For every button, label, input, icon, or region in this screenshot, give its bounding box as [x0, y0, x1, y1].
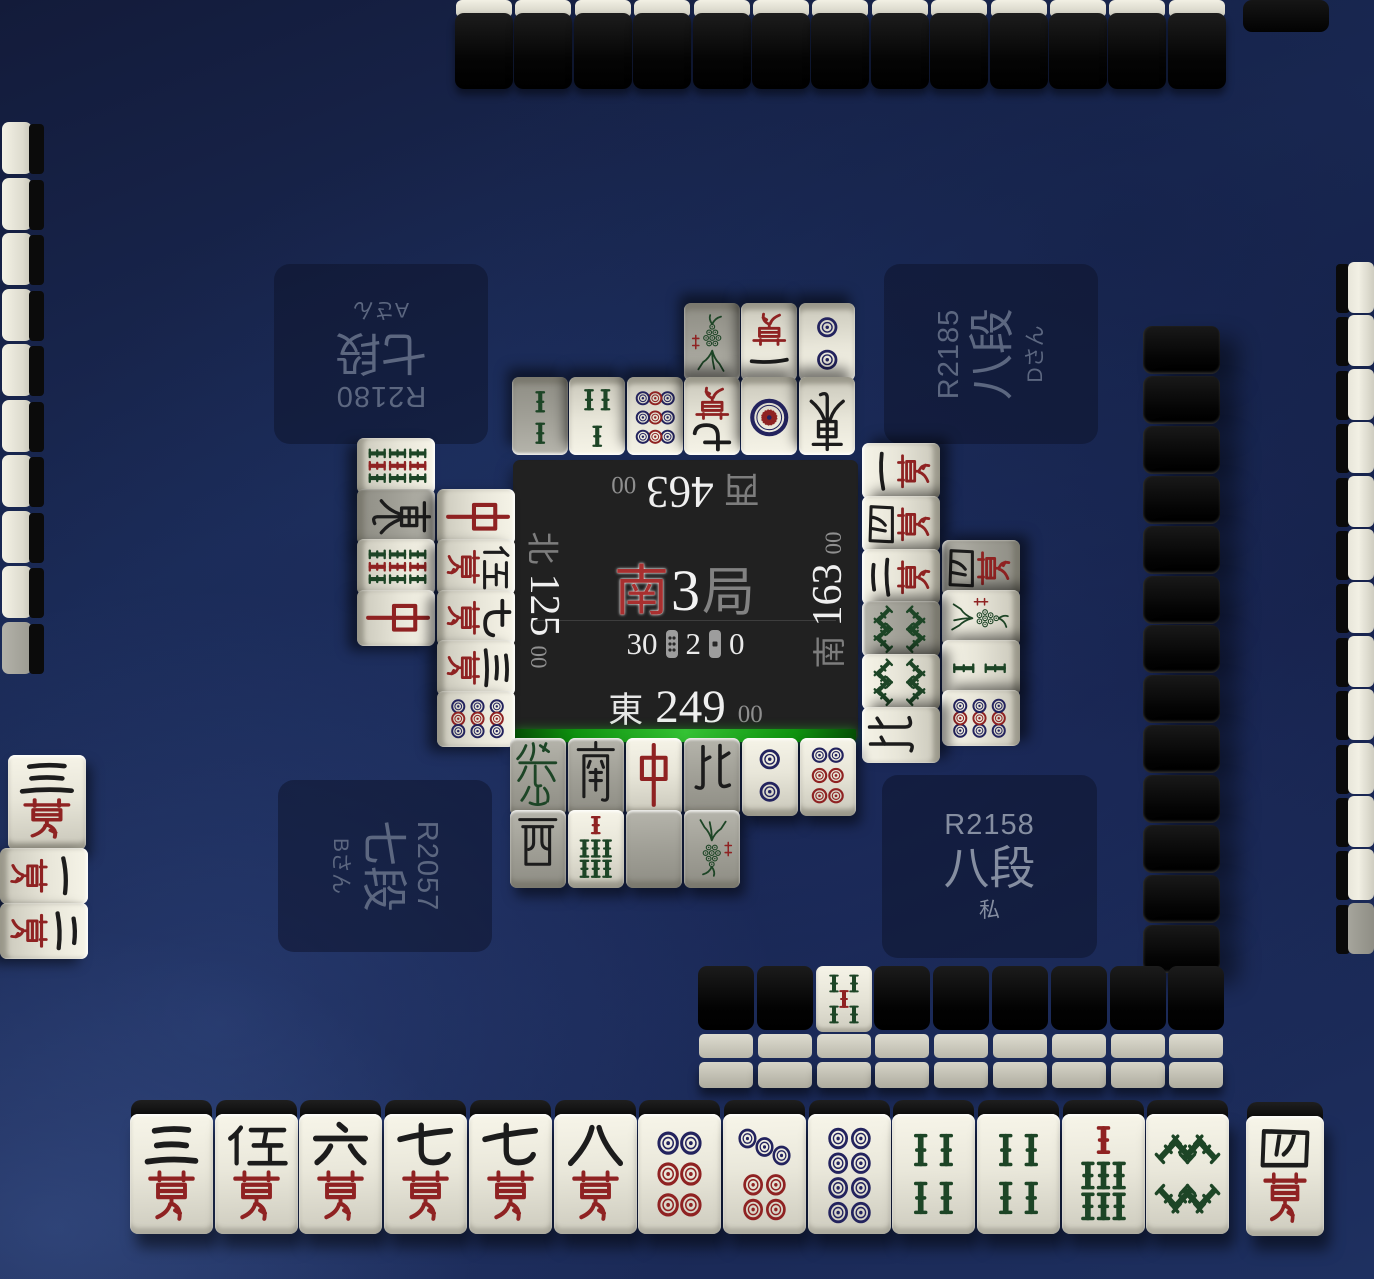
right-outer-wall-tile-side — [1336, 262, 1374, 314]
left-wall-tile-side — [2, 289, 46, 343]
drawn-tile-4m[interactable] — [1246, 1102, 1324, 1252]
right-wall-tile-back — [1143, 725, 1220, 773]
tile-9m-discard-left — [437, 590, 515, 646]
left-wall-tile-side — [2, 455, 46, 509]
tile-9p-discard-top — [627, 377, 683, 455]
hand-tile-5m[interactable] — [215, 1100, 298, 1250]
tile-N-discard-right — [862, 707, 940, 763]
tile-E-discard-left — [357, 489, 435, 545]
hand-tile-4s[interactable] — [892, 1100, 975, 1250]
tile-8s-discard-right — [862, 654, 940, 710]
bottom-wall-tile-back — [1168, 966, 1224, 1094]
top-wall-tile-back — [752, 0, 810, 90]
player-left-name: Bさん — [327, 780, 357, 952]
right-outer-wall-tile-side — [1336, 529, 1374, 581]
left-wall-tile-side — [2, 566, 46, 620]
tile-N-discard-bottom — [684, 738, 740, 816]
tile-9s-discard-left — [357, 539, 435, 595]
left-wall-tile-side — [2, 400, 46, 454]
hand-tile-7p[interactable] — [723, 1100, 806, 1250]
tile-W-discard-bottom — [510, 810, 566, 888]
top-wall-tile-back — [633, 0, 691, 90]
right-outer-wall-tile-side — [1336, 476, 1374, 528]
right-wall-tile-back — [1143, 526, 1220, 574]
tile-9s-discard-left — [357, 438, 435, 494]
player-bottom-name: 私 — [882, 894, 1097, 924]
score-top: 西 463 00 — [513, 466, 858, 518]
player-bottom-rank: 八段 — [882, 842, 1097, 895]
tile-9m-discard-top — [684, 377, 740, 455]
bottom-wall-tile-back — [933, 966, 989, 1094]
top-wall-tile-back — [811, 0, 869, 90]
tile-2p-discard-top — [799, 303, 855, 381]
player-panel-left: R2057 七段 Bさん — [278, 780, 492, 952]
round-indicator: 南3局 — [513, 546, 858, 626]
tile-4m-discard-right — [942, 540, 1020, 596]
sticks-row: 30 2 0 — [513, 626, 858, 662]
player-top-rank: 七段 — [274, 326, 488, 379]
bottom-wall-tile-back — [992, 966, 1048, 1094]
tile-C-discard-left — [357, 590, 435, 646]
right-wall-tile-back — [1143, 476, 1220, 524]
tile-9p-discard-right — [942, 690, 1020, 746]
tile-E-discard-top — [799, 377, 855, 455]
top-wall-tile-back — [574, 0, 632, 90]
tile-1m-discard-right — [862, 443, 940, 499]
tile-1s-discard-top — [684, 303, 740, 381]
bottom-wall-tile-back — [1051, 966, 1107, 1094]
tile-2p-discard-bottom — [742, 738, 798, 816]
player-right-rating: R2185 — [933, 264, 966, 444]
right-wall-tile-back — [1143, 576, 1220, 624]
left-wall-tile-side — [2, 233, 46, 287]
hand-tile-7m[interactable] — [469, 1100, 552, 1250]
round-number: 3 — [671, 558, 702, 623]
player-left-rating: R2057 — [410, 780, 443, 952]
tile-2m-discard-right — [862, 549, 940, 605]
left-wall-tile-side — [2, 178, 46, 232]
right-outer-wall-tile-side — [1336, 422, 1374, 474]
mahjong-table: R2180 七段 Aさん R2185 八段 Dさん R2057 七段 Bさん R… — [0, 0, 1374, 1279]
hand-tile-6p[interactable] — [638, 1100, 721, 1250]
top-wall-tile-back — [514, 0, 572, 90]
tile-3m-meld — [8, 755, 86, 850]
tile-F-discard-bottom — [510, 738, 566, 816]
right-wall-tile-back — [1143, 326, 1220, 374]
tile-3m-discard-left — [437, 640, 515, 696]
right-outer-wall-tile-side — [1336, 315, 1374, 367]
tile-C-discard-bottom — [626, 738, 682, 816]
hundred-point-stick-icon — [665, 629, 679, 659]
center-divider — [535, 620, 836, 621]
bottom-wall-tile-back — [698, 966, 754, 1094]
right-outer-wall-tile-side — [1336, 903, 1374, 955]
score-top-value: 463 — [646, 466, 714, 518]
top-wall-tile-back — [1168, 0, 1226, 90]
tile-C-discard-left — [437, 489, 515, 545]
right-outer-wall-tile-side — [1336, 582, 1374, 634]
left-wall-tile-side — [2, 122, 46, 176]
tile-1m-meld — [0, 848, 88, 904]
thousand-point-stick-icon — [708, 629, 722, 659]
tile-1m-discard-top — [741, 303, 797, 381]
left-wall-tile-side — [2, 622, 46, 676]
tile-2s-discard-right — [942, 640, 1020, 696]
top-wall-tile-back — [455, 0, 513, 90]
riichi-stick-count: 0 — [729, 626, 745, 662]
right-wall-tile-back — [1143, 675, 1220, 723]
player-right-name: Dさん — [1019, 264, 1049, 444]
left-wall-tile-side — [2, 344, 46, 398]
tile-1p-discard-top — [741, 377, 797, 455]
tiles-remaining-count: 30 — [627, 626, 658, 662]
right-outer-wall-tile-side — [1336, 796, 1374, 848]
right-outer-wall-tile-side — [1336, 689, 1374, 741]
score-bottom-cents: 00 — [738, 701, 763, 729]
tile-7s-discard-bottom — [568, 810, 624, 888]
top-wall-tile-back — [693, 0, 751, 90]
score-bottom-wind: 東 — [608, 682, 643, 733]
player-panel-top: R2180 七段 Aさん — [274, 264, 488, 444]
top-wall-tile-back — [1108, 0, 1166, 90]
hand-tile-8p[interactable] — [808, 1100, 891, 1250]
hand-tile-7m[interactable] — [384, 1100, 467, 1250]
right-wall-tile-back — [1143, 825, 1220, 873]
wall-fragment — [1243, 0, 1329, 32]
hand-tile-4s[interactable] — [977, 1100, 1060, 1250]
hand-tile-3m[interactable] — [130, 1100, 213, 1250]
tile-8s-discard-right — [862, 601, 940, 657]
top-wall-tile-back — [990, 0, 1048, 90]
tile-2m-meld — [0, 903, 88, 959]
score-top-wind: 西 — [724, 466, 760, 518]
tile-9p-discard-left — [437, 691, 515, 747]
tile-S-discard-bottom — [568, 738, 624, 816]
right-wall-tile-back — [1143, 775, 1220, 823]
score-top-cents: 00 — [611, 470, 636, 498]
top-wall-tile-back — [871, 0, 929, 90]
player-right-rank: 八段 — [966, 264, 1019, 444]
right-outer-wall-tile-side — [1336, 849, 1374, 901]
hand-tile-8m[interactable] — [554, 1100, 637, 1250]
center-info-panel: 西 463 00 北 125 00 南 163 00 南3局 30 2 — [513, 460, 858, 742]
hand-tile-6m[interactable] — [299, 1100, 382, 1250]
bottom-wall-tile-back — [1110, 966, 1166, 1094]
bottom-wall-tile-back — [757, 966, 813, 1094]
tile-2s-discard-top — [512, 377, 568, 455]
player-panel-bottom: R2158 八段 私 — [882, 775, 1097, 958]
tile-4m-discard-right — [862, 496, 940, 552]
player-panel-right: R2185 八段 Dさん — [884, 264, 1098, 444]
hand-tile-7s[interactable] — [1062, 1100, 1145, 1250]
tile-6p-discard-bottom — [800, 738, 856, 816]
dora-indicator-tile-5s — [816, 966, 872, 1094]
player-top-rating: R2180 — [274, 379, 488, 412]
tile-5m-discard-left — [437, 539, 515, 595]
round-wind: 南 — [614, 561, 671, 622]
right-outer-wall-tile-side — [1336, 636, 1374, 688]
right-wall-tile-back — [1143, 875, 1220, 923]
right-wall-tile-back — [1143, 625, 1220, 673]
bottom-wall-tile-back — [874, 966, 930, 1094]
tile-1s-discard-right — [942, 590, 1020, 646]
player-bottom-rating: R2158 — [882, 809, 1097, 842]
honba-count: 2 — [686, 626, 702, 662]
tile-P-discard-bottom — [626, 810, 682, 888]
hand-tile-8s[interactable] — [1146, 1100, 1229, 1250]
score-bottom: 東 249 00 — [513, 680, 858, 734]
right-wall-tile-back — [1143, 426, 1220, 474]
right-outer-wall-tile-side — [1336, 369, 1374, 421]
top-wall-tile-back — [1049, 0, 1107, 90]
right-outer-wall-tile-side — [1336, 743, 1374, 795]
right-wall-tile-back — [1143, 376, 1220, 424]
score-bottom-value: 249 — [655, 680, 726, 734]
player-top-name: Aさん — [274, 296, 488, 326]
tile-3s-discard-top — [569, 377, 625, 455]
tile-1s-discard-bottom — [684, 810, 740, 888]
player-left-rank: 七段 — [357, 780, 410, 952]
left-wall-tile-side — [2, 511, 46, 565]
round-suffix: 局 — [702, 564, 757, 622]
top-wall-tile-back — [930, 0, 988, 90]
